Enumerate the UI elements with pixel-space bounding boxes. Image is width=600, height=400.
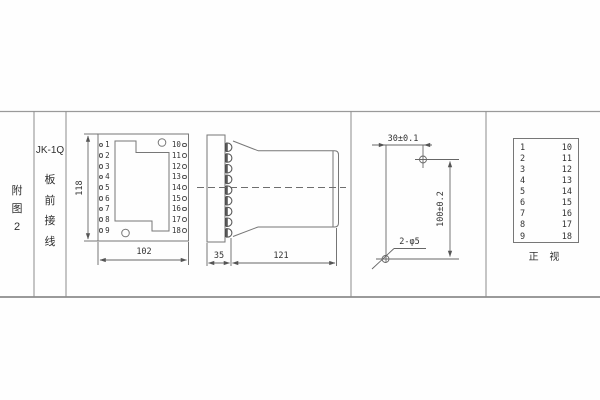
- table-cell-right: 12: [562, 165, 572, 176]
- terminal-circle-icon: [99, 217, 104, 222]
- front-view-right-terminals: 10 11 12 13 14 15: [168, 140, 187, 236]
- table-cell-right: 14: [562, 187, 572, 198]
- table-cell-left: 2: [520, 154, 525, 165]
- table-row: 9 18: [520, 232, 572, 243]
- terminal-row: 6: [99, 193, 115, 204]
- terminal-number: 18: [172, 227, 181, 235]
- terminal-circle-icon: [182, 143, 187, 148]
- table-cell-left: 7: [520, 209, 525, 220]
- terminal-bumps: [226, 143, 231, 237]
- terminal-circle-icon: [99, 196, 104, 201]
- table-cell-right: 16: [562, 209, 572, 220]
- terminal-circle-icon: [182, 217, 187, 222]
- terminal-number: 5: [105, 184, 110, 192]
- terminal-number: 14: [172, 184, 181, 192]
- table-cell-right: 13: [562, 176, 572, 187]
- front-view-caption: 正 视: [513, 253, 579, 263]
- terminal-number: 11: [172, 152, 181, 160]
- table-row: 5 14: [520, 187, 572, 198]
- table-row: 7 16: [520, 209, 572, 220]
- table-row: 1 10: [520, 143, 572, 154]
- table-cell-right: 10: [562, 143, 572, 154]
- table-row: 6 15: [520, 198, 572, 209]
- figure-char: 2: [14, 222, 20, 233]
- terminal-number: 13: [172, 173, 181, 181]
- table-cell-left: 6: [520, 198, 525, 209]
- terminal-row: 11: [168, 150, 187, 161]
- terminal-circle-icon: [99, 185, 104, 190]
- drawing-linework: [0, 0, 600, 400]
- terminal-row: 18: [168, 225, 187, 236]
- figure-char: 图: [12, 204, 23, 215]
- dim-height-118: 118: [76, 173, 86, 203]
- terminal-number: 10: [172, 141, 181, 149]
- terminal-number: 15: [172, 195, 181, 203]
- terminal-row: 4: [99, 172, 115, 183]
- mounting-char: 前: [45, 196, 56, 207]
- terminal-number: 12: [172, 163, 181, 171]
- terminal-number: 3: [105, 163, 110, 171]
- terminal-circle-icon: [182, 185, 187, 190]
- terminal-row: 15: [168, 193, 187, 204]
- terminal-row: 9: [99, 225, 115, 236]
- terminal-circle-icon: [99, 153, 104, 158]
- terminal-row: 2: [99, 150, 115, 161]
- drawing-sheet: 附图2 JK-1Q 板前接线 1 2 3 4: [0, 0, 600, 400]
- terminal-row: 7: [99, 204, 115, 215]
- terminal-circle-icon: [99, 228, 104, 233]
- terminal-row: 10: [168, 140, 187, 151]
- table-row: 4 13: [520, 176, 572, 187]
- terminal-row: 1: [99, 140, 115, 151]
- terminal-row: 13: [168, 172, 187, 183]
- dim-flange-35: 35: [207, 252, 231, 261]
- figure-number-label: 附图2: [6, 186, 28, 233]
- terminal-row: 16: [168, 204, 187, 215]
- dim-hole-spacing-100: 100±0.2: [437, 186, 447, 232]
- table-cell-left: 5: [520, 187, 525, 198]
- mounting-hole-bottom: [122, 229, 130, 237]
- table-cell-right: 17: [562, 220, 572, 231]
- terminal-row: 3: [99, 161, 115, 172]
- table-cell-left: 1: [520, 143, 525, 154]
- terminal-row: 8: [99, 214, 115, 225]
- mounting-type-label: 板前接线: [39, 175, 61, 248]
- mounting-char: 接: [45, 216, 56, 227]
- terminal-row: 14: [168, 182, 187, 193]
- terminal-number: 17: [172, 216, 181, 224]
- band-borders: [0, 112, 600, 298]
- drill-holes-label: 2-φ5: [393, 238, 426, 247]
- dim-width-102: 102: [129, 248, 159, 257]
- dim-body-121: 121: [267, 252, 295, 261]
- dim-hole-spacing-30: 30±0.1: [381, 135, 425, 144]
- table-cell-right: 18: [562, 232, 572, 243]
- terminal-circle-icon: [99, 207, 104, 212]
- mounting-char: 板: [45, 175, 56, 186]
- terminal-circle-icon: [182, 164, 187, 169]
- table-row: 2 11: [520, 154, 572, 165]
- terminal-row: 5: [99, 182, 115, 193]
- mounting-hole-top: [158, 139, 166, 147]
- terminal-circle-icon: [182, 228, 187, 233]
- table-cell-left: 3: [520, 165, 525, 176]
- figure-char: 附: [12, 186, 23, 197]
- terminal-number: 2: [105, 152, 110, 160]
- terminal-circle-icon: [99, 175, 104, 180]
- mounting-char: 线: [45, 237, 56, 248]
- table-cell-right: 11: [562, 154, 572, 165]
- model-label: JK-1Q: [33, 146, 67, 156]
- terminal-number: 6: [105, 195, 110, 203]
- table-row: 3 12: [520, 165, 572, 176]
- terminal-mapping-table: 1 10 2 11 3 12 4 13 5 14: [513, 138, 579, 243]
- table-cell-right: 15: [562, 198, 572, 209]
- table-row: 8 17: [520, 220, 572, 231]
- terminal-circle-icon: [182, 175, 187, 180]
- table-cell-left: 8: [520, 220, 525, 231]
- terminal-number: 9: [105, 227, 110, 235]
- terminal-number: 1: [105, 141, 110, 149]
- front-view-left-terminals: 1 2 3 4 5 6: [99, 140, 115, 236]
- terminal-circle-icon: [182, 207, 187, 212]
- table-cell-left: 4: [520, 176, 525, 187]
- terminal-number: 8: [105, 216, 110, 224]
- terminal-circle-icon: [99, 143, 104, 148]
- terminal-number: 16: [172, 205, 181, 213]
- terminal-circle-icon: [182, 153, 187, 158]
- terminal-row: 17: [168, 214, 187, 225]
- table-cell-left: 9: [520, 232, 525, 243]
- terminal-circle-icon: [99, 164, 104, 169]
- panel-plate: [207, 135, 225, 242]
- terminal-circle-icon: [182, 196, 187, 201]
- terminal-number: 4: [105, 173, 110, 181]
- terminal-number: 7: [105, 205, 110, 213]
- terminal-row: 12: [168, 161, 187, 172]
